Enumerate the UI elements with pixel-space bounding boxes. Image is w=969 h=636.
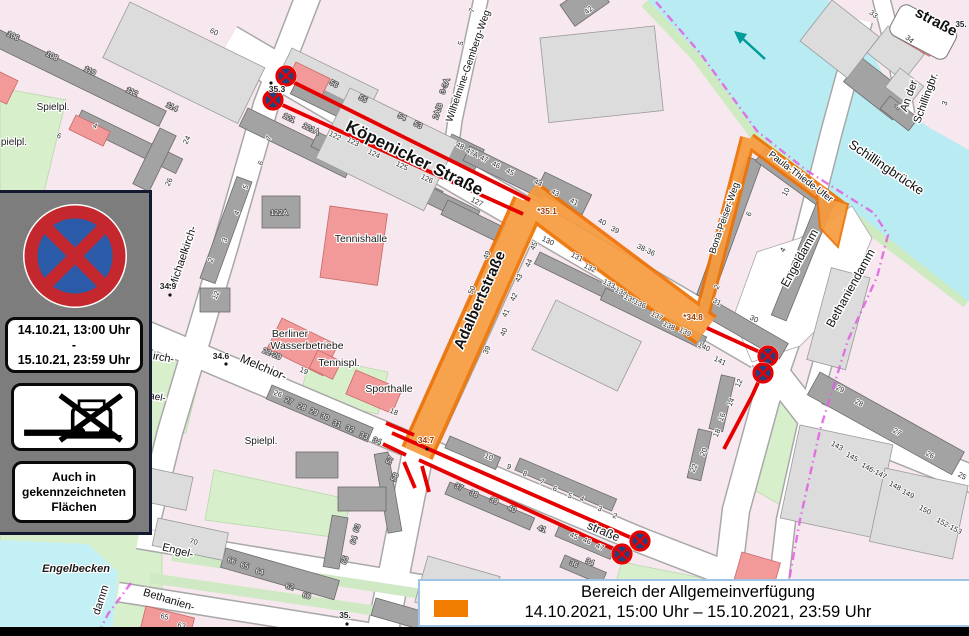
tow-away-sign-box	[11, 383, 138, 451]
ref-marker-label: 35.3	[269, 84, 286, 94]
bottom-window-bar	[0, 627, 969, 636]
validity-line: -	[8, 338, 140, 353]
place-label: Wasserbetriebe	[270, 340, 343, 352]
ref-dot	[345, 622, 348, 625]
map-legend: Bereich der Allgemeinverfügung 14.10.202…	[418, 579, 969, 627]
note-line: gekennzeichneten	[15, 485, 133, 500]
validity-line: 14.10.21, 13:00 Uhr	[8, 323, 140, 338]
legend-zone-swatch	[434, 600, 468, 617]
note-line: Auch in	[15, 470, 133, 485]
ref-marker-label: *35.1	[537, 206, 557, 216]
no-stopping-marker-icon	[752, 362, 774, 384]
ref-marker-label: 34.9	[160, 281, 177, 291]
ref-marker-label: 35.	[955, 20, 966, 29]
ref-marker-label: 34.7	[418, 435, 435, 445]
place-label: Spielpl.	[245, 436, 278, 447]
ref-dot	[168, 293, 171, 296]
legend-period: 14.10.2021, 15:00 Uhr – 15.10.2021, 23:5…	[420, 603, 969, 622]
no-stopping-marker-icon	[611, 543, 633, 565]
place-label: Tennishalle	[335, 233, 388, 245]
place-label: Engelbecken	[42, 563, 110, 575]
place-label: pielpl.	[1, 137, 27, 148]
validity-line: 15.10.21, 23:59 Uhr	[8, 353, 140, 368]
ref-marker-label: 35.	[339, 610, 351, 620]
place-label: Spielpl.	[37, 102, 70, 113]
allgemeinverfuegung-map-page: 565554534847A474645444341403938-36121121…	[0, 0, 969, 636]
legend-title: Bereich der Allgemeinverfügung	[420, 583, 969, 602]
no-stopping-sign-icon	[20, 201, 130, 311]
ref-marker-label: *34.8	[683, 312, 703, 322]
validity-period-box: 14.10.21, 13:00 Uhr - 15.10.21, 23:59 Uh…	[5, 317, 143, 373]
also-marked-areas-box: Auch in gekennzeichneten Flächen	[12, 461, 136, 523]
note-line: Flächen	[15, 500, 133, 515]
traffic-sign-panel: 14.10.21, 13:00 Uhr - 15.10.21, 23:59 Uh…	[0, 190, 152, 535]
tow-away-icon	[18, 390, 131, 444]
place-label: Sporthalle	[365, 383, 412, 395]
ref-dot	[224, 362, 227, 365]
place-label: Berliner	[272, 328, 309, 340]
no-stopping-marker-icon	[629, 530, 651, 552]
ref-marker-label: 34.6	[213, 351, 230, 361]
house-number: 122A	[270, 208, 288, 217]
ref-dot	[425, 447, 428, 450]
place-label: Tennispl.	[318, 357, 359, 369]
